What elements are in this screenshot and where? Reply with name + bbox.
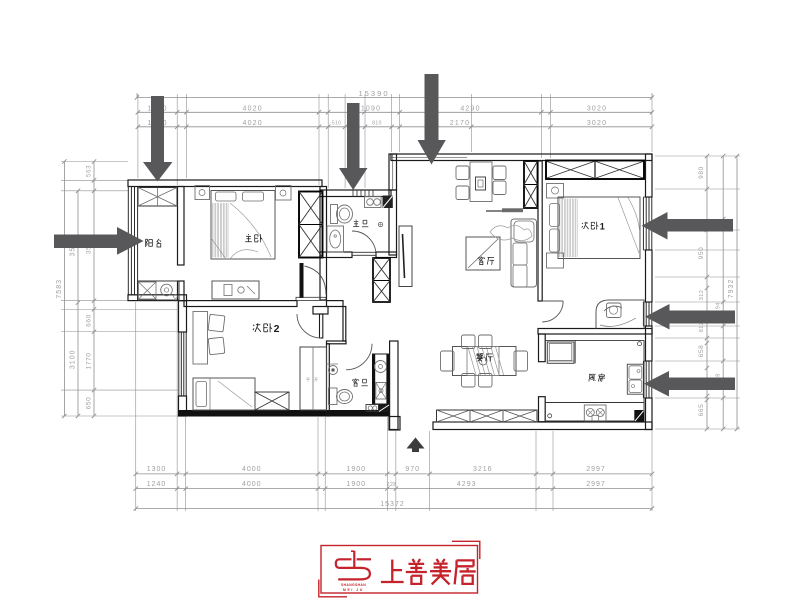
svg-text:2997: 2997 — [586, 481, 606, 488]
svg-text:1: 1 — [600, 221, 605, 231]
svg-text:228: 228 — [387, 482, 397, 488]
svg-text:3020: 3020 — [587, 120, 607, 127]
svg-text:MEI JU: MEI JU — [343, 588, 364, 592]
svg-text:658: 658 — [698, 345, 705, 358]
svg-text:650: 650 — [85, 397, 92, 410]
svg-text:15390: 15390 — [358, 89, 389, 98]
svg-text:312: 312 — [699, 290, 705, 300]
svg-text:4000: 4000 — [242, 481, 262, 488]
svg-text:660: 660 — [85, 314, 92, 327]
svg-text:3020: 3020 — [587, 105, 607, 112]
svg-text:4020: 4020 — [243, 105, 263, 112]
svg-text:1300: 1300 — [147, 466, 167, 473]
svg-text:SHANGSHAN: SHANGSHAN — [341, 583, 366, 587]
svg-text:..: .. — [593, 400, 596, 405]
svg-text:8: 8 — [715, 373, 721, 376]
svg-text:7932: 7932 — [728, 279, 735, 299]
svg-text:3100: 3100 — [70, 350, 77, 370]
svg-text:1240: 1240 — [147, 481, 167, 488]
svg-text:510: 510 — [332, 121, 342, 127]
svg-text:4293: 4293 — [457, 481, 477, 488]
svg-text:1770: 1770 — [85, 352, 92, 369]
svg-text:94: 94 — [715, 302, 721, 309]
svg-text:3216: 3216 — [473, 466, 493, 473]
svg-text:2997: 2997 — [586, 466, 606, 473]
svg-text:平: 平 — [306, 377, 310, 382]
svg-text:4290: 4290 — [460, 105, 480, 112]
svg-text:950: 950 — [698, 247, 705, 260]
svg-text:810: 810 — [372, 121, 382, 127]
svg-text:563: 563 — [85, 165, 92, 177]
svg-text:15372: 15372 — [380, 501, 404, 508]
svg-text:970: 970 — [405, 466, 420, 473]
svg-text:1900: 1900 — [347, 481, 367, 488]
svg-text:4000: 4000 — [242, 466, 262, 473]
svg-text:2: 2 — [274, 323, 280, 335]
svg-text:开: 开 — [314, 377, 318, 382]
svg-text:980: 980 — [698, 166, 705, 179]
svg-text:1900: 1900 — [347, 466, 367, 473]
svg-text:4020: 4020 — [243, 120, 263, 127]
svg-text:665: 665 — [698, 404, 705, 417]
svg-text:2170: 2170 — [450, 120, 470, 127]
svg-text:1090: 1090 — [361, 105, 381, 112]
svg-text:7583: 7583 — [56, 279, 63, 299]
